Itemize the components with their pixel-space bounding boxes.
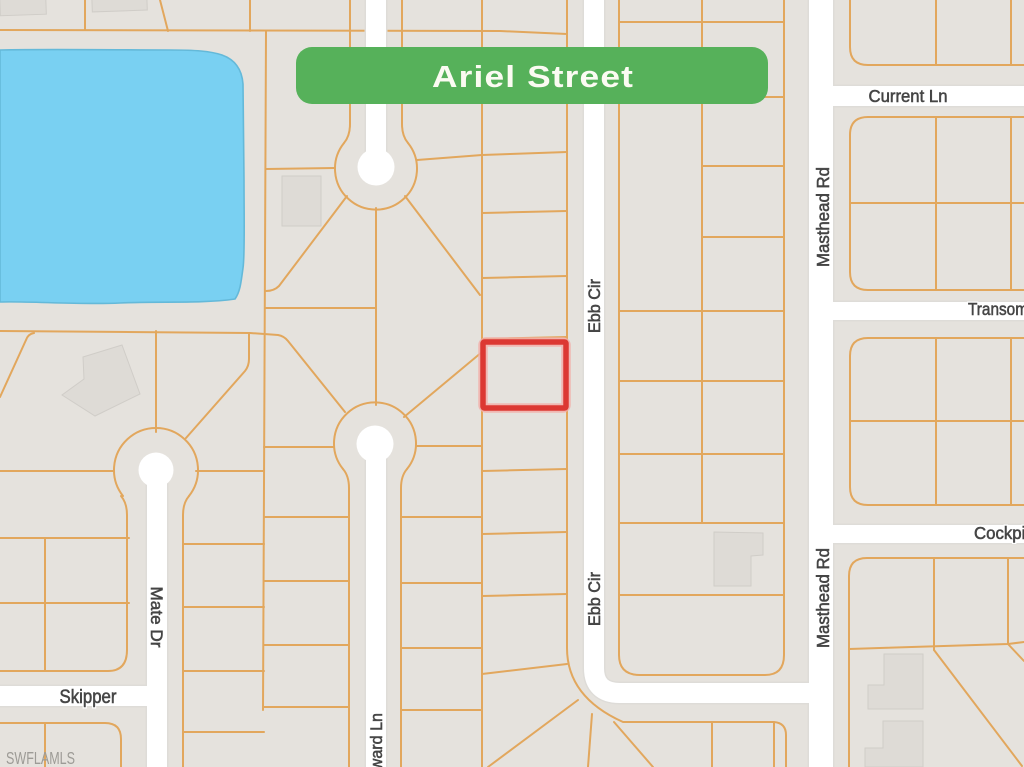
svg-text:Transom: Transom [968,299,1024,319]
svg-text:SWFLAMLS: SWFLAMLS [6,748,75,767]
svg-text:Ebb Cir: Ebb Cir [586,279,604,333]
svg-text:Windward Ln: Windward Ln [367,713,386,767]
svg-text:Ariel Street: Ariel Street [432,59,634,94]
svg-text:Masthead Rd: Masthead Rd [813,167,833,267]
svg-text:Ebb Cir: Ebb Cir [586,572,604,626]
svg-text:Masthead Rd: Masthead Rd [813,548,833,648]
svg-text:Skipper: Skipper [60,687,118,708]
svg-text:Mate Dr: Mate Dr [147,587,166,648]
svg-text:Current Ln: Current Ln [869,86,948,106]
svg-text:Cockpit: Cockpit [974,523,1024,543]
